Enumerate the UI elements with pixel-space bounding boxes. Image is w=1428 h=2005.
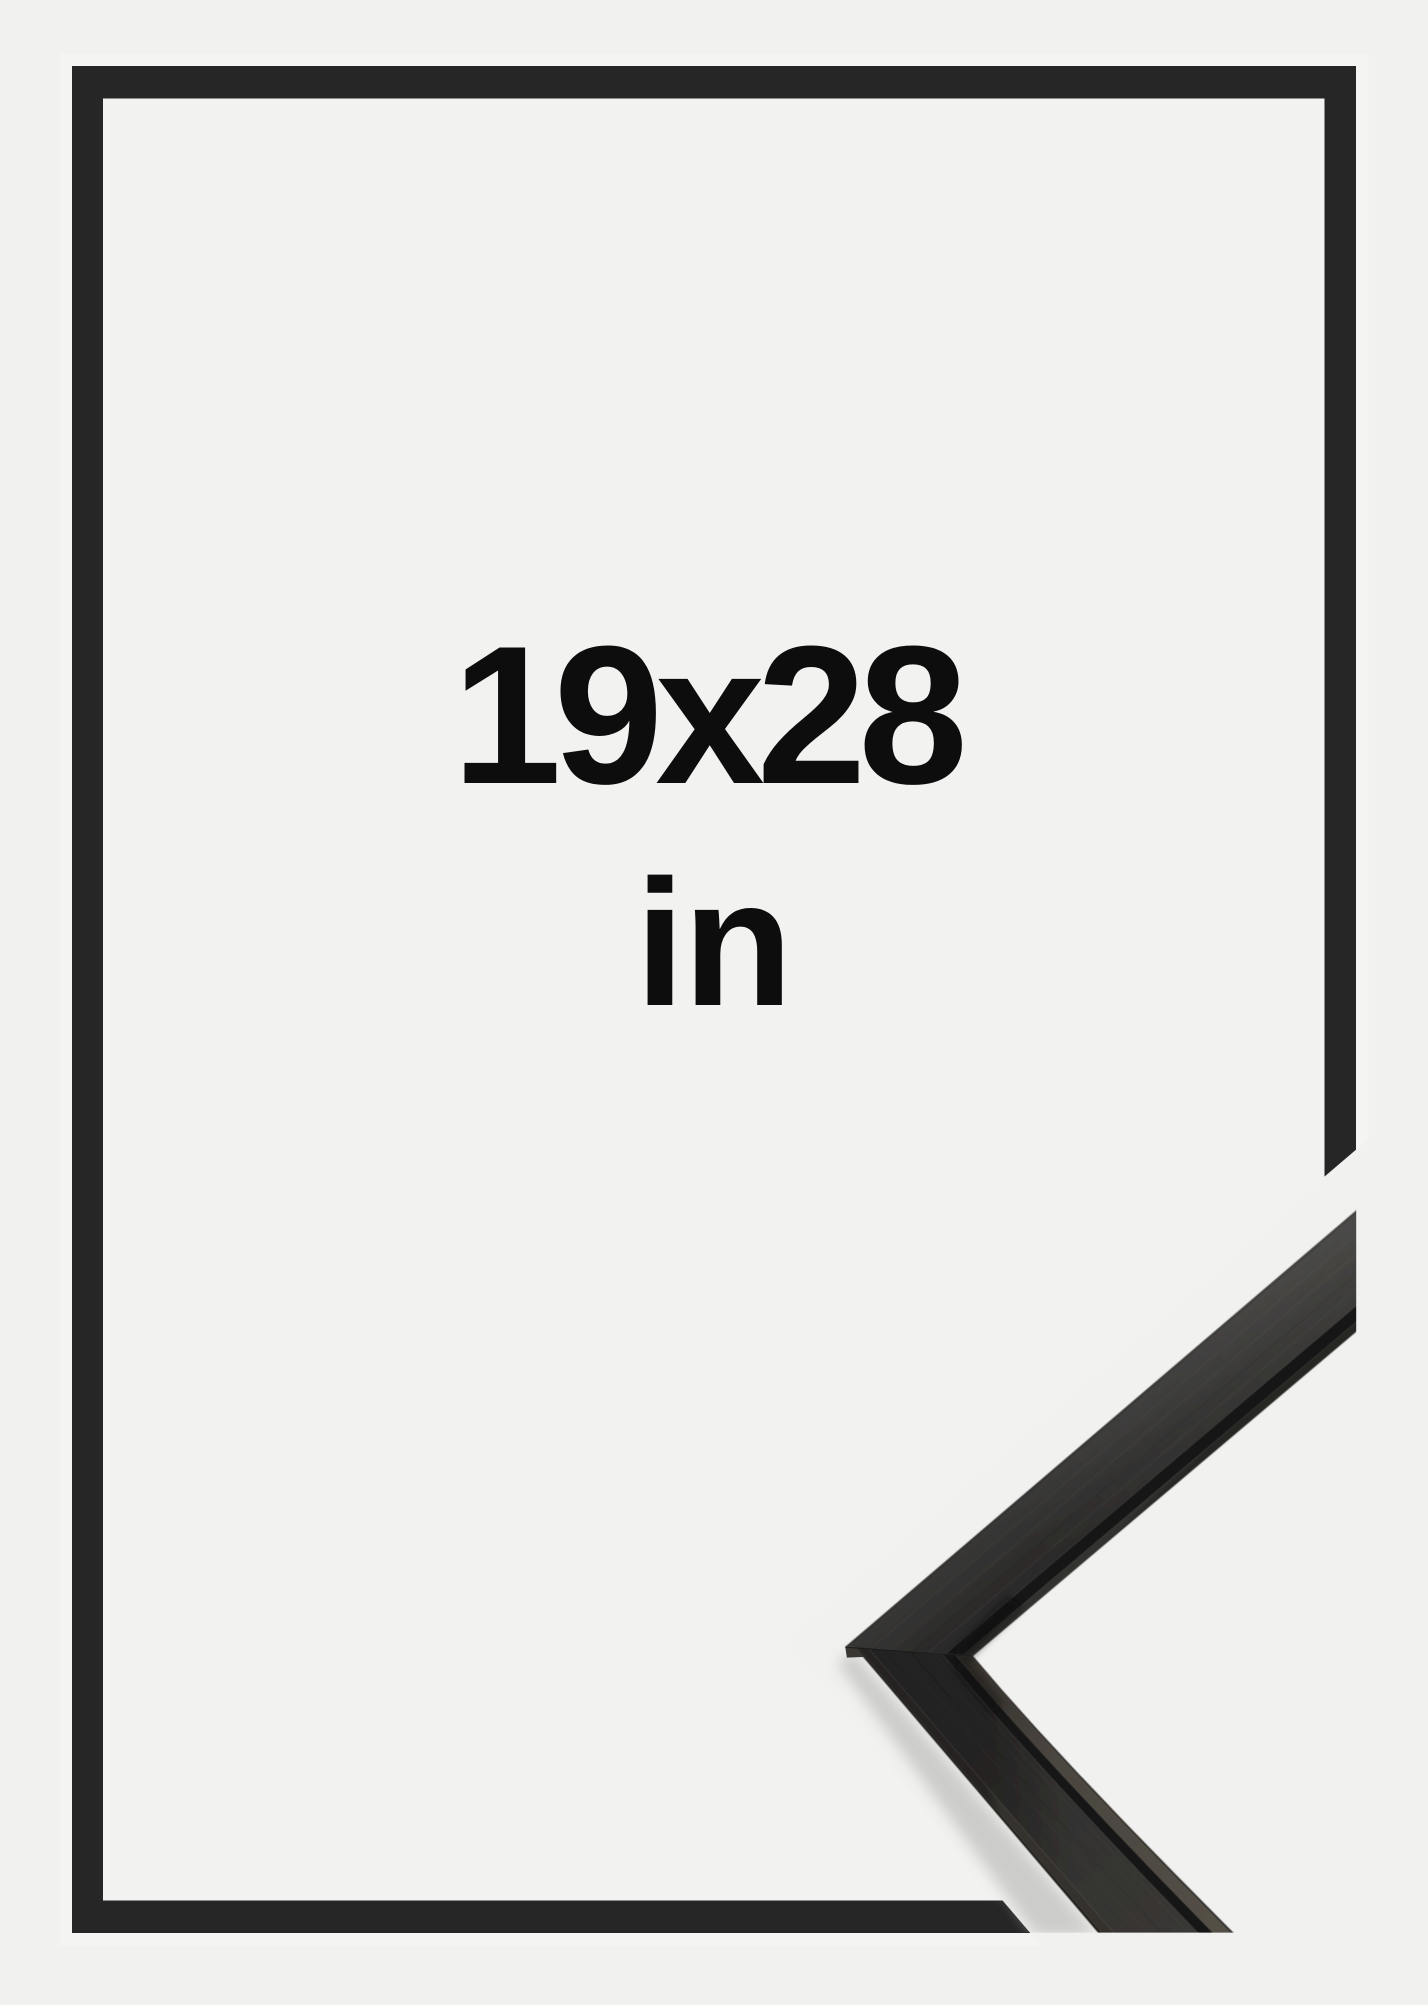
svg-text:19x28: 19x28 bbox=[452, 605, 962, 825]
svg-text:in: in bbox=[635, 843, 791, 1044]
